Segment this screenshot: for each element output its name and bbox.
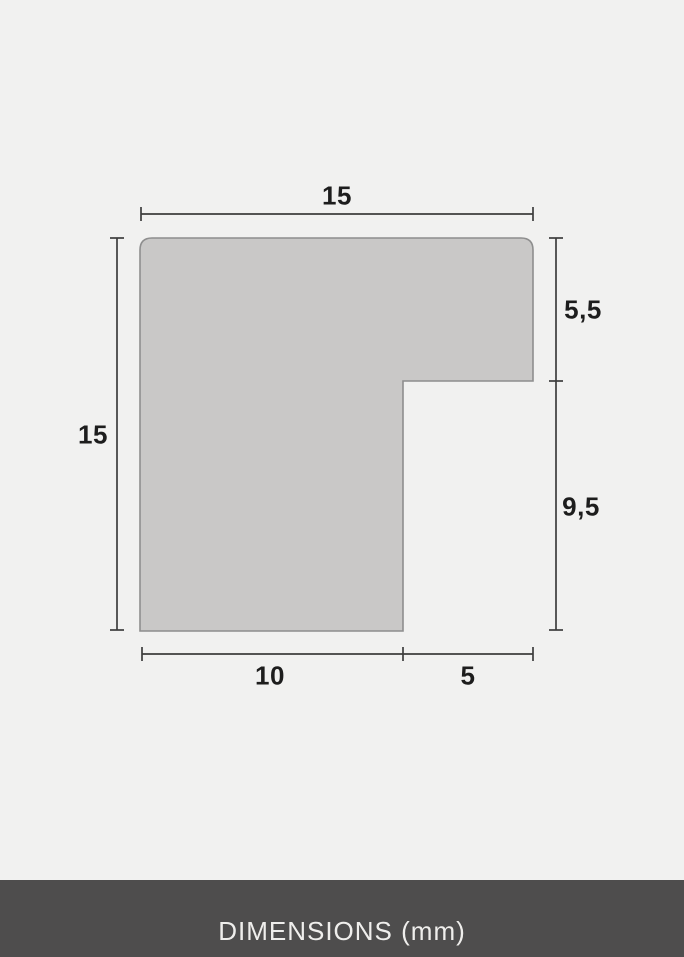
- right-dimension-line: [549, 238, 563, 630]
- right-lower-depth-label: 9,5: [562, 492, 600, 523]
- frame-profile-cross-section: [140, 238, 533, 631]
- right-upper-depth-label: 5,5: [564, 295, 602, 326]
- top-width-label: 15: [322, 181, 352, 212]
- frame-profile-diagram: 15 15 5,5 9,5 10 5: [0, 0, 684, 880]
- frame-profile-dimension-screen: 15 15 5,5 9,5 10 5 DIMENSIONS (mm): [0, 0, 684, 957]
- dimensions-footer-label: DIMENSIONS (mm): [218, 916, 466, 947]
- left-height-label: 15: [78, 420, 108, 451]
- bottom-left-width-label: 10: [255, 661, 285, 692]
- bottom-dimension-line: [142, 647, 533, 661]
- bottom-right-width-label: 5: [461, 661, 476, 692]
- left-dimension-line: [110, 238, 124, 630]
- dimensions-footer: DIMENSIONS (mm): [0, 880, 684, 957]
